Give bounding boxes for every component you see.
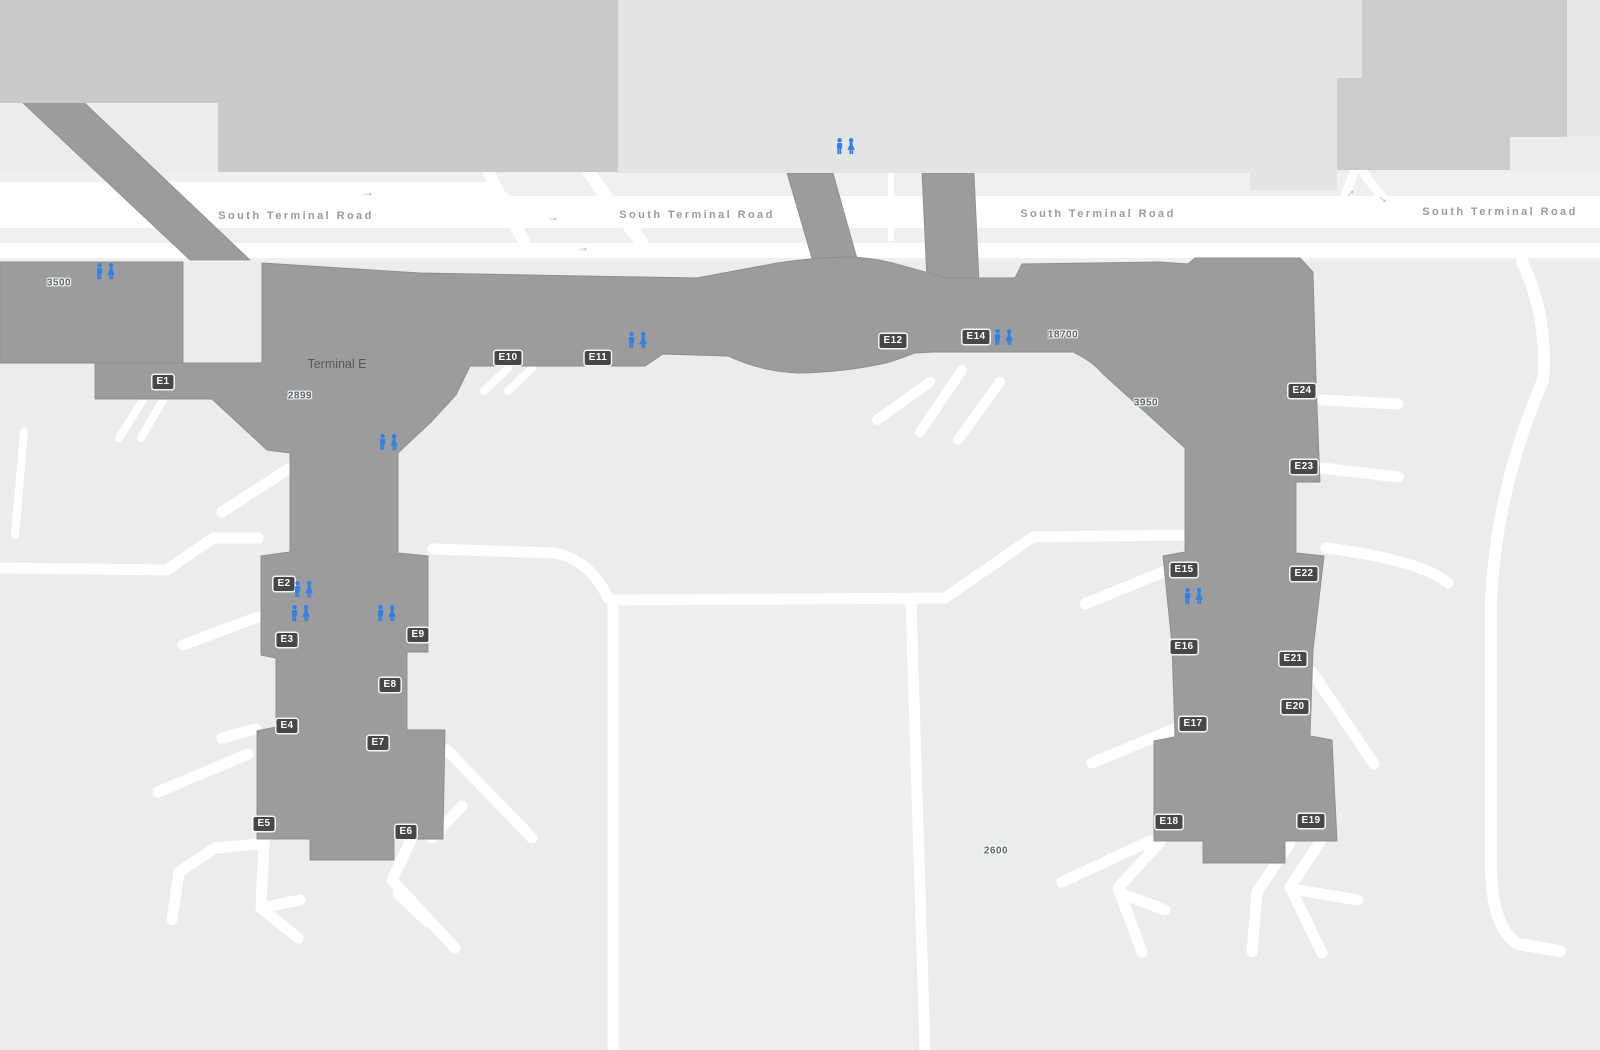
road-name-label: South Terminal Road [218,210,373,222]
gate-badge-e10: E10 [495,351,522,365]
road-name-label: South Terminal Road [619,209,774,221]
restroom-icon [835,138,857,157]
gate-badge-e8: E8 [379,678,400,692]
road-direction-arrow-icon: → [577,240,589,254]
restroom-icon [293,581,315,600]
gate-badge-e1: E1 [152,375,173,389]
road-direction-arrow-icon: → [362,185,374,199]
gate-badge-e23: E23 [1291,460,1318,474]
map-label-overlay: Terminal E E1E2E3E4E5E6E7E8E9E10E11E12E1… [0,0,1600,1050]
parcel-number-label: 2600 [984,846,1008,857]
restroom-icon [376,605,398,624]
gate-badge-e22: E22 [1291,567,1318,581]
gate-badge-e15: E15 [1171,563,1198,577]
gate-badge-e16: E16 [1171,640,1198,654]
road-direction-arrow-icon: → [547,210,559,224]
restroom-icon [378,434,400,453]
gate-badge-e4: E4 [276,719,297,733]
parcel-number-label: 2899 [288,391,312,402]
road-direction-arrow-icon: → [1340,183,1358,201]
gate-badge-e14: E14 [963,330,990,344]
gate-badge-e2: E2 [273,577,294,591]
parcel-number-label: 18700 [1048,330,1078,341]
parcel-number-label: 3500 [47,278,71,289]
gate-badge-e6: E6 [395,825,416,839]
gate-badge-e20: E20 [1282,700,1309,714]
gate-badge-e9: E9 [407,628,428,642]
gate-badge-e7: E7 [367,736,388,750]
restroom-icon [627,332,649,351]
restroom-icon [290,605,312,624]
gate-badge-e3: E3 [276,633,297,647]
gate-badge-e12: E12 [880,334,907,348]
gate-badge-e5: E5 [253,817,274,831]
road-name-label: South Terminal Road [1020,208,1175,220]
gate-badge-e11: E11 [585,351,611,365]
gate-badge-e17: E17 [1180,717,1207,731]
gate-badge-e21: E21 [1280,652,1307,666]
road-direction-arrow-icon: → [1375,189,1393,207]
restroom-icon [993,329,1015,348]
gate-badge-e18: E18 [1156,815,1183,829]
restroom-icon [1183,588,1205,607]
parcel-number-label: 3950 [1134,398,1158,409]
restroom-icon [95,263,117,282]
airport-terminal-map[interactable]: Terminal E E1E2E3E4E5E6E7E8E9E10E11E12E1… [0,0,1600,1050]
gate-badge-e24: E24 [1289,384,1316,398]
gate-badge-e19: E19 [1298,814,1325,828]
terminal-name-label: Terminal E [307,357,366,371]
road-name-label: South Terminal Road [1422,206,1577,218]
